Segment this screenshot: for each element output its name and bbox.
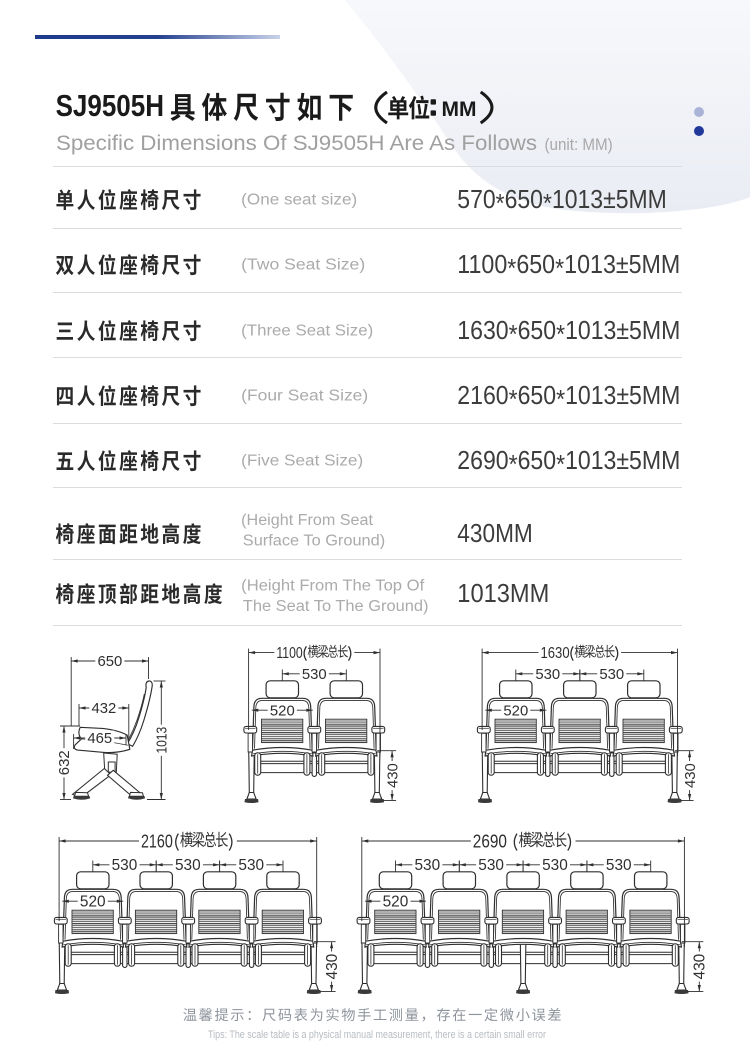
svg-text:1013: 1013 xyxy=(154,727,171,754)
svg-text:530: 530 xyxy=(542,857,568,874)
svg-text:2160: 2160 xyxy=(141,831,173,851)
svg-text:530: 530 xyxy=(478,857,504,874)
svg-text:2690: 2690 xyxy=(473,831,507,851)
svg-text:430: 430 xyxy=(324,953,341,979)
svg-text:520: 520 xyxy=(270,702,295,719)
svg-text:1630: 1630 xyxy=(541,645,570,662)
svg-text:530: 530 xyxy=(175,857,201,874)
svg-text:530: 530 xyxy=(302,666,327,683)
svg-text:432: 432 xyxy=(92,700,117,717)
svg-text:632: 632 xyxy=(56,750,73,775)
svg-text:530: 530 xyxy=(415,857,441,874)
svg-text:465: 465 xyxy=(87,730,112,747)
svg-text:530: 530 xyxy=(599,666,624,683)
svg-text:650: 650 xyxy=(98,653,123,670)
svg-text:Tips: The scale table is a phy: Tips: The scale table is a physical manu… xyxy=(208,1029,546,1041)
svg-text:430: 430 xyxy=(384,763,401,788)
svg-text:530: 530 xyxy=(112,857,138,874)
svg-text:430: 430 xyxy=(682,763,699,788)
svg-text:520: 520 xyxy=(503,702,528,719)
svg-text:520: 520 xyxy=(80,894,106,911)
svg-text:530: 530 xyxy=(606,857,632,874)
svg-text:430: 430 xyxy=(692,953,709,979)
svg-text:1100: 1100 xyxy=(276,645,302,662)
svg-text:520: 520 xyxy=(383,894,409,911)
svg-text:530: 530 xyxy=(238,857,264,874)
svg-text:530: 530 xyxy=(535,666,560,683)
